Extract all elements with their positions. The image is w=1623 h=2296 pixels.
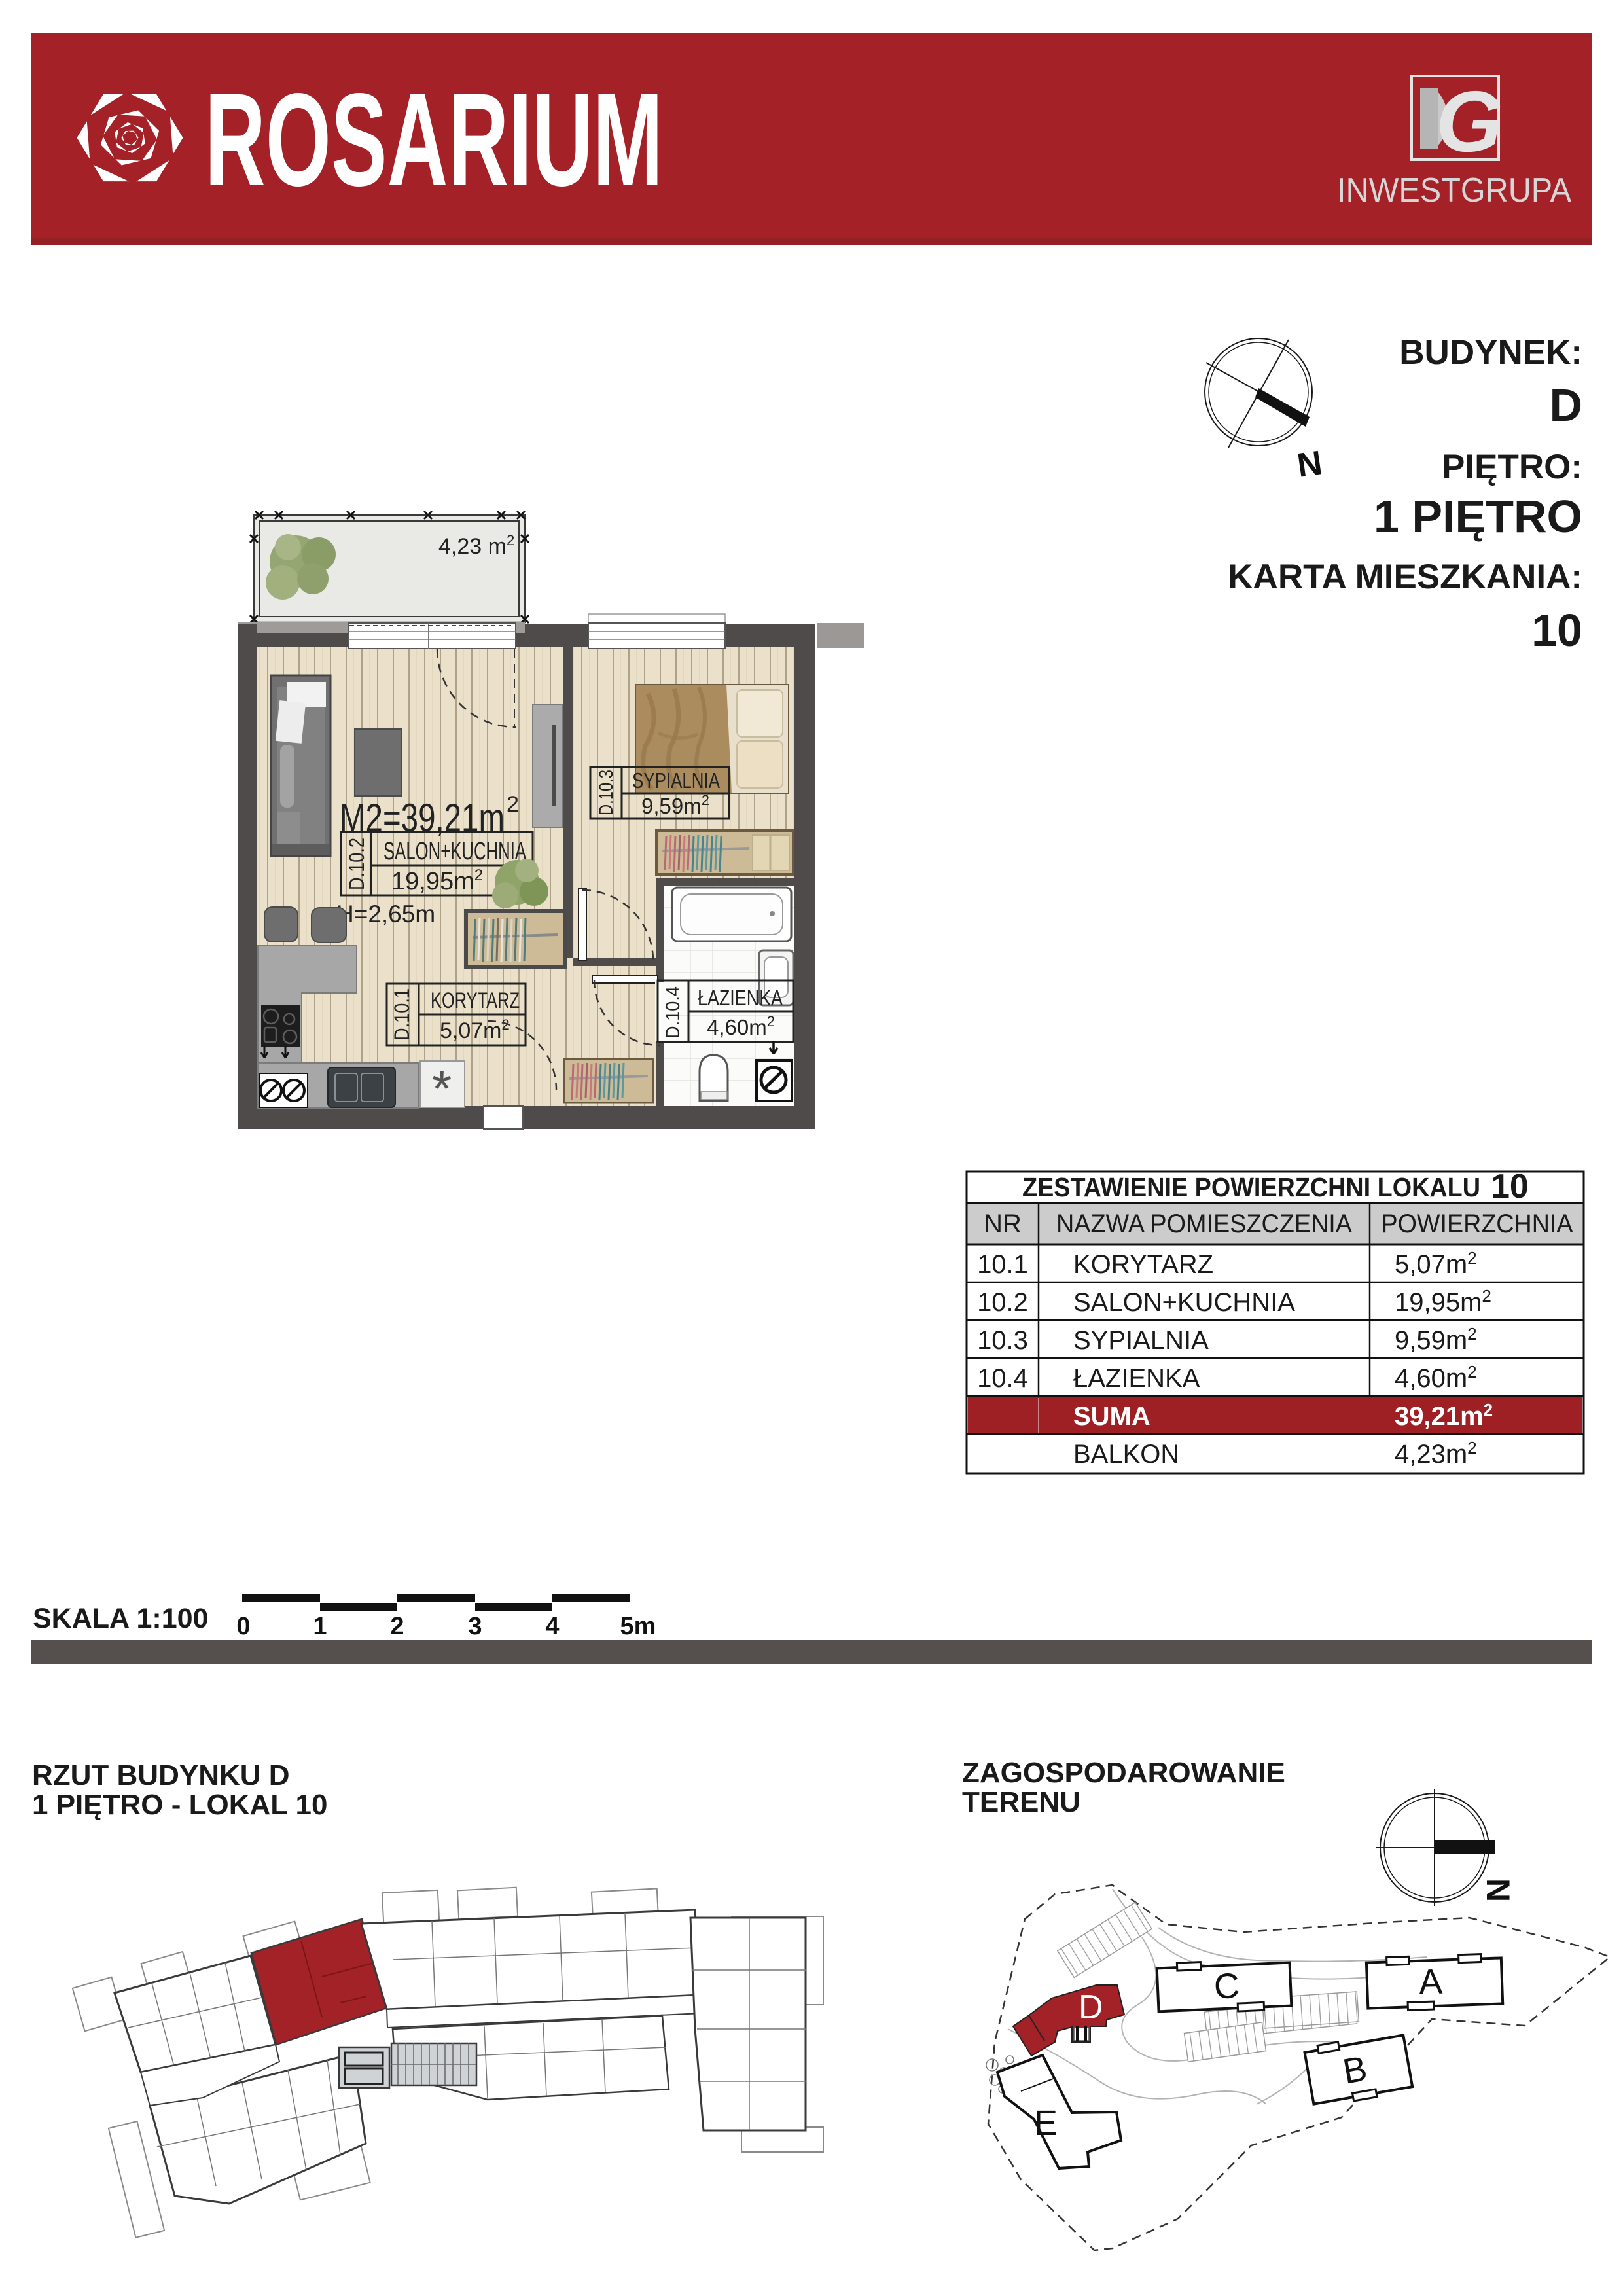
svg-text:1 PIĘTRO: 1 PIĘTRO (1374, 491, 1582, 542)
svg-text:4: 4 (545, 1613, 559, 1640)
svg-text:9,59m2: 9,59m2 (1395, 1324, 1477, 1355)
svg-text:KORYTARZ: KORYTARZ (431, 988, 520, 1013)
svg-text:4,60m2: 4,60m2 (1395, 1362, 1477, 1393)
svg-text:ROSARIUM: ROSARIUM (205, 65, 663, 213)
svg-text:TERENU: TERENU (962, 1786, 1080, 1818)
svg-text:*: * (432, 1060, 452, 1117)
svg-text:N: N (1480, 1878, 1516, 1902)
svg-text:D: D (1079, 1988, 1103, 2026)
svg-text:19,95m2: 19,95m2 (1395, 1286, 1491, 1317)
svg-text:H=2,65m: H=2,65m (336, 901, 435, 927)
svg-text:D.10.3: D.10.3 (596, 770, 617, 816)
svg-text:10.4: 10.4 (977, 1364, 1028, 1393)
svg-text:D.10.1: D.10.1 (390, 988, 414, 1041)
svg-text:NR: NR (984, 1210, 1022, 1238)
svg-text:D.10.2: D.10.2 (345, 838, 368, 890)
svg-text:2: 2 (507, 792, 519, 817)
svg-text:9,59m2: 9,59m2 (641, 792, 709, 818)
svg-text:5m: 5m (620, 1613, 656, 1640)
svg-text:SYPIALNIA: SYPIALNIA (632, 768, 720, 793)
svg-text:10.2: 10.2 (977, 1288, 1028, 1317)
svg-text:5,07m2: 5,07m2 (440, 1016, 510, 1043)
svg-text:10.1: 10.1 (977, 1250, 1028, 1279)
svg-text:G: G (1436, 73, 1503, 170)
svg-text:SALON+KUCHNIA: SALON+KUCHNIA (1073, 1288, 1295, 1317)
svg-text:NAZWA POMIESZCZENIA: NAZWA POMIESZCZENIA (1056, 1210, 1352, 1238)
svg-text:PIĘTRO:: PIĘTRO: (1442, 448, 1582, 486)
svg-text:2: 2 (390, 1613, 404, 1640)
svg-text:4,23 m2: 4,23 m2 (438, 532, 514, 559)
svg-text:10.3: 10.3 (977, 1326, 1028, 1355)
svg-text:KARTA MIESZKANIA:: KARTA MIESZKANIA: (1228, 558, 1582, 596)
svg-text:ZAGOSPODAROWANIE: ZAGOSPODAROWANIE (962, 1757, 1285, 1789)
svg-text:1: 1 (313, 1613, 327, 1640)
svg-text:ŁAZIENKA: ŁAZIENKA (1073, 1364, 1200, 1393)
svg-text:KORYTARZ: KORYTARZ (1073, 1250, 1213, 1279)
svg-text:4,23m2: 4,23m2 (1395, 1438, 1477, 1469)
svg-text:SKALA 1:100: SKALA 1:100 (33, 1603, 208, 1634)
svg-text:D: D (1549, 380, 1582, 431)
svg-text:POWIERZCHNIA: POWIERZCHNIA (1382, 1210, 1573, 1238)
svg-text:39,21m2: 39,21m2 (1395, 1400, 1493, 1431)
svg-text:ŁAZIENKA: ŁAZIENKA (698, 986, 783, 1010)
svg-text:0: 0 (236, 1613, 250, 1640)
svg-text:10: 10 (1491, 1168, 1529, 1206)
svg-text:A: A (1418, 1962, 1443, 2002)
svg-text:D.10.4: D.10.4 (662, 986, 684, 1039)
svg-text:ZESTAWIENIE POWIERZCHNI LOKALU: ZESTAWIENIE POWIERZCHNI LOKALU (1022, 1172, 1480, 1202)
svg-text:C: C (1213, 1966, 1241, 2007)
svg-text:INWESTGRUPA: INWESTGRUPA (1337, 171, 1571, 209)
svg-text:M2=39,21m: M2=39,21m (340, 796, 505, 840)
svg-text:SYPIALNIA: SYPIALNIA (1073, 1326, 1209, 1355)
svg-text:5,07m2: 5,07m2 (1395, 1248, 1477, 1279)
svg-text:1 PIĘTRO - LOKAL 10: 1 PIĘTRO - LOKAL 10 (32, 1789, 328, 1821)
svg-text:3: 3 (468, 1613, 482, 1640)
svg-text:SALON+KUCHNIA: SALON+KUCHNIA (383, 838, 526, 865)
svg-text:BALKON: BALKON (1073, 1440, 1179, 1469)
svg-text:N: N (1295, 444, 1325, 485)
svg-text:BUDYNEK:: BUDYNEK: (1399, 333, 1582, 372)
svg-text:RZUT BUDYNKU D: RZUT BUDYNKU D (32, 1759, 290, 1791)
svg-text:19,95m2: 19,95m2 (391, 867, 483, 895)
svg-text:4,60m2: 4,60m2 (707, 1013, 775, 1039)
svg-text:SUMA: SUMA (1073, 1402, 1150, 1431)
svg-text:10: 10 (1531, 605, 1582, 656)
svg-text:E: E (1034, 2104, 1058, 2143)
